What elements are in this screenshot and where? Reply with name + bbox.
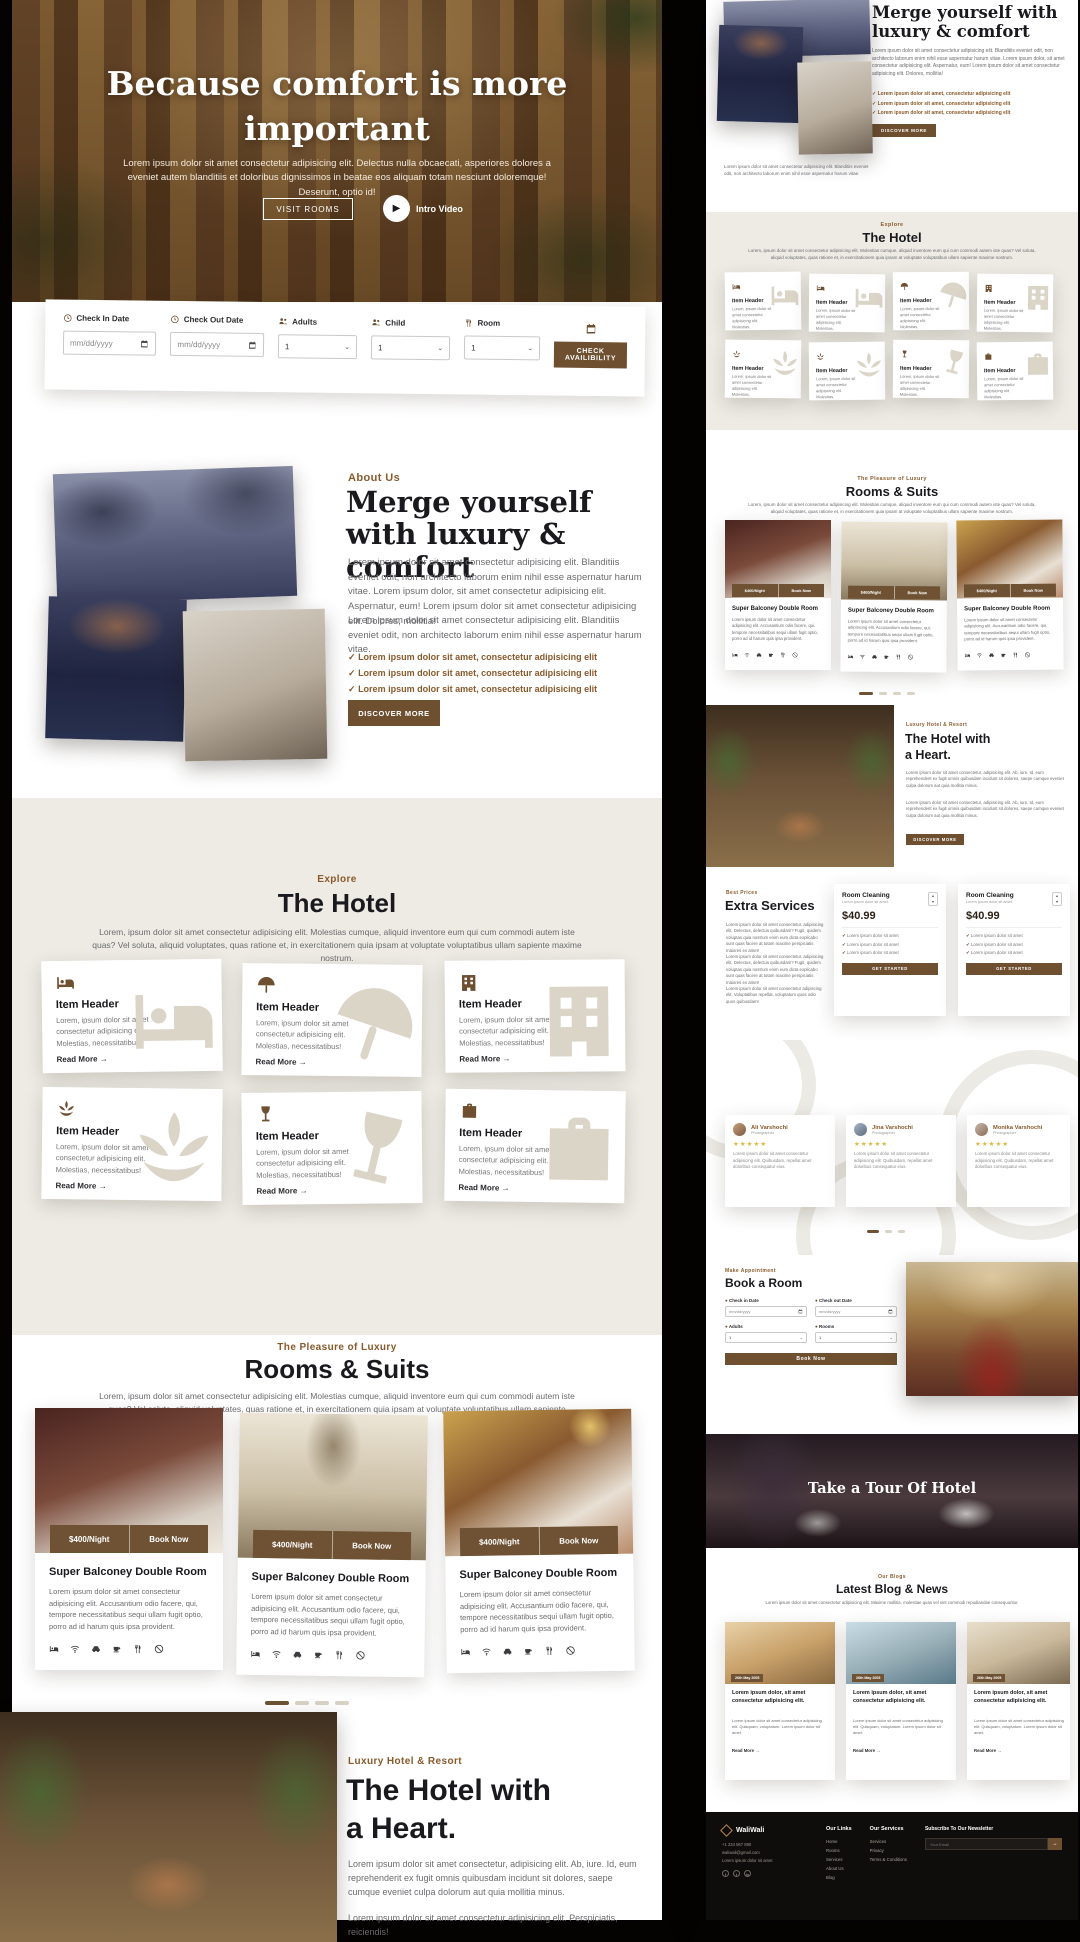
field-adults: Adults 1⌄ — [278, 316, 358, 359]
explore-card-spa[interactable]: Item Header Lorem, ipsum dolor sit amet … — [725, 340, 802, 399]
instagram-icon[interactable]: in — [744, 1870, 751, 1877]
read-more-link[interactable]: Read More → — [853, 1748, 880, 1753]
check-circle-icon: ✔ — [842, 950, 846, 955]
rooms-heading: Rooms & Suits — [12, 1354, 662, 1385]
restaurant-icon — [133, 1644, 143, 1654]
star-rating: ★★★★★ — [975, 1140, 1062, 1148]
wifi-icon — [271, 1649, 281, 1659]
get-started-button[interactable]: GET STARTED — [842, 963, 938, 975]
clock-icon — [63, 314, 72, 323]
service-feature: ✔ Lorem ipsum dolor sit amet — [842, 949, 938, 958]
services-paragraph-1: Lorem ipsum dolor sit amet consectetur, … — [726, 922, 826, 954]
room-price: $400/Night — [50, 1525, 129, 1553]
umbrella-icon — [316, 968, 423, 1077]
explore-card-building[interactable]: Item Header Lorem, ipsum dolor sit amet … — [977, 274, 1054, 333]
service-feature: ✔ Lorem ipsum dolor sit amet — [966, 949, 1062, 958]
bed-icon — [847, 654, 853, 660]
spa-leaf-icon — [56, 1099, 76, 1119]
room-price-bar: $400/Night Book Now — [50, 1525, 208, 1553]
heart-paragraph-2: Lorem ipsum dolor sit amet consectetur a… — [348, 1912, 644, 1940]
wifi-icon — [744, 652, 750, 658]
footer-email[interactable]: waliwali@gmail.com — [722, 1849, 808, 1857]
blog-card[interactable]: 26th May 2005 Lorem ipsum dolor, sit ame… — [725, 1622, 835, 1780]
book-adults-select[interactable]: 1⌄ — [725, 1332, 807, 1343]
book-field-check-in: ● Check in Date mm/dd/yyyy — [725, 1298, 807, 1317]
footer-link[interactable]: Rooms — [826, 1846, 852, 1855]
service-title: Room Cleaning — [966, 892, 1014, 899]
arrow-right-icon: → — [299, 1057, 307, 1066]
blog-title: Lorem ipsum dolor, sit amet consectetur … — [732, 1690, 828, 1705]
newsletter-send-button[interactable]: → — [1048, 1838, 1062, 1850]
discover-more-button[interactable]: DISCOVER MORE — [872, 124, 936, 137]
explore-card-spa[interactable]: Item Header Lorem, ipsum dolor sit amet … — [41, 1087, 222, 1201]
child-icon — [371, 317, 381, 327]
room-select[interactable]: 1⌄ — [464, 335, 540, 360]
footer-newsletter-block: Subscribe To Our Newsletter → — [925, 1826, 1062, 1882]
service-feature: ✔ Lorem ipsum dolor sit amet — [966, 932, 1062, 941]
quantity-stepper[interactable]: ▴▾ — [928, 892, 938, 906]
explore-card-bed[interactable]: Item Header Lorem, ipsum dolor sit amet … — [41, 959, 223, 1074]
visit-rooms-button[interactable]: VISIT ROOMS — [263, 198, 353, 220]
explore-eyebrow: Explore — [706, 222, 1078, 228]
coffee-icon — [1000, 652, 1006, 658]
briefcase-icon — [1023, 350, 1053, 380]
blog-paragraph: Lorem ipsum dolor sit amet consectetur a… — [742, 1600, 1042, 1606]
rooms-eyebrow: The Pleasure of Luxury — [706, 476, 1078, 482]
room-card[interactable]: $400/Night Book Now Super Balconey Doubl… — [956, 520, 1063, 671]
check-icon: ✓ — [872, 110, 876, 116]
book-field-adults: ● Adults 1⌄ — [725, 1324, 807, 1343]
blog-title: Lorem ipsum dolor, sit amet consectetur … — [974, 1690, 1064, 1705]
check-in-input[interactable]: mm/dd/yyyy — [63, 331, 157, 356]
hero-title: Because comfort is more important — [97, 62, 577, 151]
avatar — [733, 1123, 746, 1136]
heart-eyebrow: Luxury Hotel & Resort — [906, 722, 967, 728]
briefcase-icon — [459, 1101, 479, 1121]
heart-paragraph-1: Lorem ipsum dolor sit amet consectetur, … — [348, 1858, 644, 1900]
blog-date-badge: 26th May 2005 — [731, 1674, 763, 1682]
spa-leaf-icon — [853, 350, 885, 382]
footer-address: Lorem ipsum dolor sit amet — [722, 1857, 808, 1865]
footer-link[interactable]: About Us — [826, 1864, 852, 1873]
restaurant-icon — [895, 654, 901, 660]
wifi-icon — [481, 1647, 491, 1657]
client-name: Ali Varshochi — [751, 1125, 788, 1131]
check-circle-icon: ✔ — [966, 933, 970, 938]
room-text: Lorem ipsum dolor sit amet consectetur a… — [732, 617, 824, 642]
arrow-right-icon: → — [997, 1748, 1001, 1753]
room-amenities — [847, 654, 913, 661]
read-more-link[interactable]: Read More → — [974, 1748, 1001, 1753]
service-card[interactable]: Room Cleaning Lorem ipsum dolor sit amet… — [834, 884, 946, 1016]
bed-icon — [127, 975, 220, 1068]
book-now-button[interactable]: Book Now — [129, 1525, 209, 1553]
room-amenities — [250, 1649, 365, 1661]
arrow-right-icon: → — [876, 1748, 880, 1753]
check-availability-button[interactable]: CHECK AVAILIBILITY — [554, 342, 627, 369]
footer-links-title: Our Links — [826, 1826, 852, 1832]
about-heading: Merge yourself with luxury & comfort — [872, 4, 1072, 42]
blog-card[interactable]: 26th May 2005 Lorem ipsum dolor, sit ame… — [967, 1622, 1070, 1780]
book-field-rooms: ● Rooms 1⌄ — [815, 1324, 897, 1343]
tour-heading: Take a Tour Of Hotel — [706, 1480, 1078, 1497]
chevron-down-icon: ⌄ — [527, 344, 533, 352]
bed-icon — [460, 1647, 470, 1657]
building-icon — [459, 972, 479, 992]
no-smoking-icon — [565, 1646, 575, 1656]
room-price: $400/Night — [253, 1530, 332, 1559]
wifi-icon — [70, 1644, 80, 1654]
service-sub: Lorem ipsum dolor sit amet. — [966, 900, 1014, 904]
hero-subtitle: Lorem ipsum dolor sit amet consectetur a… — [117, 157, 557, 200]
coffee-icon — [112, 1644, 122, 1654]
service-card[interactable]: Room Cleaning Lorem ipsum dolor sit amet… — [958, 884, 1070, 1016]
rooms-heading: Rooms & Suits — [706, 484, 1078, 499]
footer-link[interactable]: Home — [826, 1837, 852, 1846]
testimonial-text: Lorem ipsum dolor sit amet consectetur a… — [733, 1151, 827, 1171]
room-price: $400/Night — [848, 586, 894, 599]
explore-card-bed[interactable]: Item Header Lorem, ipsum dolor sit amet … — [725, 272, 802, 331]
book-now-button[interactable]: Book Now — [778, 584, 825, 597]
play-button[interactable]: ▶ — [383, 195, 410, 222]
room-card[interactable]: $400/Night Book Now Super Balconey Doubl… — [725, 520, 831, 670]
bed-icon — [769, 280, 801, 312]
coffee-icon — [523, 1646, 533, 1656]
about-eyebrow: About Us — [348, 472, 400, 484]
explore-card-briefcase[interactable]: Item Header Lorem, ipsum dolor sit amet … — [444, 1089, 626, 1204]
testimonial-text: Lorem ipsum dolor sit amet consectetur a… — [854, 1151, 948, 1171]
arrow-right-icon: → — [300, 1186, 308, 1195]
client-role: Photographer — [993, 1131, 1042, 1135]
service-price: $40.99 — [966, 910, 1062, 922]
brand-name: WaliWali — [736, 1827, 764, 1834]
briefcase-icon — [984, 352, 993, 361]
check-circle-icon: ✔ — [966, 950, 970, 955]
field-child: Child 1⌄ — [371, 317, 451, 360]
umbrella-icon — [900, 282, 909, 291]
arrow-right-icon: → — [100, 1054, 108, 1063]
chevron-down-icon: ⌄ — [344, 343, 350, 351]
footer-link[interactable]: Terms & Conditions — [870, 1855, 907, 1864]
check-icon: ✓ — [348, 668, 356, 678]
room-title: Super Balconey Double Room — [459, 1567, 617, 1581]
footer-link[interactable]: Blog — [826, 1873, 852, 1882]
check-circle-icon: ✔ — [842, 933, 846, 938]
check-icon: ✓ — [348, 684, 356, 694]
service-feature: ✔ Lorem ipsum dolor sit amet — [966, 941, 1062, 950]
check-out-input[interactable]: mm/dd/yyyy — [170, 332, 264, 357]
room-amenities — [49, 1644, 164, 1654]
check-icon: ✓ — [872, 91, 876, 97]
footer-services-title: Our Services — [870, 1826, 907, 1832]
coffee-icon — [313, 1650, 323, 1660]
car-icon — [502, 1646, 512, 1656]
restaurant-icon — [544, 1646, 554, 1656]
testimonial-card[interactable]: Ali Varshochi Photographer ★★★★★ Lorem i… — [725, 1115, 835, 1207]
blog-heading: Latest Blog & News — [706, 1582, 1078, 1596]
newsletter-email-input[interactable] — [925, 1838, 1048, 1850]
footer-link[interactable]: Privacy — [870, 1846, 907, 1855]
services-eyebrow: Best Prices — [726, 890, 758, 896]
room-price-bar: $400/Night Book Now — [732, 584, 824, 597]
blog-text: Lorem ipsum dolor sit amet consectetur a… — [974, 1718, 1064, 1736]
bed-icon — [49, 1644, 59, 1654]
building-icon — [984, 284, 993, 293]
footer-services-column: Our Services Services Privacy Terms & Co… — [870, 1826, 907, 1882]
page-left: Because comfort is more important Lorem … — [12, 0, 662, 1920]
umbrella-icon — [256, 975, 276, 995]
explore-paragraph: Lorem, ipsum dolor sit amet consectetur … — [742, 248, 1042, 261]
heart-photo-lobby — [0, 1712, 337, 1942]
service-price: $40.99 — [842, 910, 938, 922]
avatar — [975, 1123, 988, 1136]
explore-paragraph: Lorem, ipsum dolor sit amet consectetur … — [92, 926, 582, 964]
page-right: Merge yourself with luxury & comfort Lor… — [706, 0, 1078, 1920]
blog-title: Lorem ipsum dolor, sit amet consectetur … — [853, 1690, 949, 1705]
spa-leaf-icon — [816, 352, 825, 361]
bed-icon — [732, 652, 738, 658]
facebook-icon[interactable]: f — [722, 1870, 729, 1877]
building-icon — [535, 975, 624, 1064]
quantity-stepper[interactable]: ▴▾ — [1052, 892, 1062, 906]
room-text: Lorem ipsum dolor sit amet consectetur a… — [251, 1591, 412, 1640]
explore-eyebrow: Explore — [12, 874, 662, 885]
service-feature: ✔ Lorem ipsum dolor sit amet — [842, 941, 938, 950]
services-heading: Extra Services — [725, 898, 815, 913]
room-price: $400/Night — [964, 584, 1010, 597]
room-title: Super Balconey Double Room — [964, 606, 1050, 613]
book-field-check-out: ● Check out Date mm/dd/yyyy — [815, 1298, 897, 1317]
field-room: Room 1⌄ — [464, 318, 540, 360]
testimonial-card[interactable]: Monika Varshochi Photographer ★★★★★ Lore… — [967, 1115, 1070, 1207]
room-card[interactable]: $400/Night Book Now Super Balconey Doubl… — [35, 1408, 223, 1670]
about-photo-bedroom — [183, 609, 328, 761]
booking-bar: Check In Date mm/dd/yyyy Check Out Date … — [44, 299, 645, 396]
room-card[interactable]: $400/Night Book Now Super Balconey Doubl… — [236, 1413, 428, 1678]
rooms-pagination[interactable] — [856, 682, 918, 700]
restaurant-icon — [334, 1650, 344, 1660]
newsletter-title: Subscribe To Our Newsletter — [925, 1826, 1062, 1832]
adults-select[interactable]: 1⌄ — [278, 334, 357, 359]
check-circle-icon: ✔ — [842, 942, 846, 947]
twitter-icon[interactable]: t — [733, 1870, 740, 1877]
bed-icon — [816, 284, 825, 293]
rooms-pagination[interactable] — [262, 1692, 352, 1710]
room-title: Super Balconey Double Room — [49, 1566, 207, 1578]
wifi-icon — [859, 654, 865, 660]
testimonial-text: Lorem ipsum dolor sit amet consectetur a… — [975, 1151, 1062, 1171]
dot-icon: ● — [725, 1324, 728, 1329]
car-icon — [91, 1644, 101, 1654]
book-now-button[interactable]: Book Now — [725, 1353, 897, 1365]
room-amenities — [964, 652, 1030, 659]
car-icon — [756, 652, 762, 658]
calendar-icon — [140, 339, 149, 348]
check-item: ✓ Lorem ipsum dolor sit amet, consectetu… — [348, 682, 597, 698]
about-photo-bedroom — [797, 61, 873, 154]
field-check-out: Check Out Date mm/dd/yyyy — [170, 315, 264, 357]
testimonial-card[interactable]: Jina Varshochi Photographer ★★★★★ Lorem … — [846, 1115, 956, 1207]
star-rating: ★★★★★ — [854, 1140, 948, 1148]
check-circle-icon: ✔ — [966, 942, 970, 947]
heart-heading: The Hotel witha Heart. — [905, 731, 990, 764]
room-price-bar: $400/Night Book Now — [964, 584, 1056, 598]
calendar-icon — [798, 1309, 803, 1314]
chevron-down-icon: ⌄ — [800, 1335, 803, 1340]
no-smoking-icon — [907, 654, 913, 660]
room-price: $400/Night — [732, 584, 778, 597]
arrow-right-icon: → — [99, 1181, 107, 1190]
explore-card-wine[interactable]: Item Header Lorem, ipsum dolor sit amet … — [893, 340, 969, 399]
brand-logo-icon — [720, 1824, 733, 1837]
book-rooms-select[interactable]: 1⌄ — [815, 1332, 897, 1343]
restaurant-icon — [1012, 652, 1018, 658]
heart-photo-lobby — [706, 705, 894, 867]
blog-card[interactable]: 26th May 2005 Lorem ipsum dolor, sit ame… — [846, 1622, 956, 1780]
client-role: Photographer — [751, 1131, 788, 1135]
about-photo-palms — [53, 466, 297, 604]
spa-leaf-icon — [769, 348, 801, 380]
car-icon — [871, 654, 877, 660]
about-paragraph-1: Lorem ipsum dolor sit amet consectetur a… — [872, 48, 1070, 78]
no-smoking-icon — [154, 1644, 164, 1654]
car-icon — [292, 1649, 302, 1659]
calendar-icon — [248, 340, 257, 349]
book-check-out-input[interactable]: mm/dd/yyyy — [815, 1306, 897, 1317]
check-icon: ✓ — [348, 652, 356, 662]
explore-card-bed[interactable]: Item Header Lorem, ipsum dolor sit amet … — [809, 274, 886, 333]
dot-icon: ● — [815, 1298, 818, 1303]
testimonials-heading: What Our Clients Say — [1059, 1070, 1080, 1084]
no-smoking-icon — [355, 1650, 365, 1660]
calendar-icon — [585, 323, 597, 335]
explore-card-briefcase[interactable]: Item Header Lorem, ipsum dolor sit amet … — [977, 342, 1054, 401]
wine-icon — [900, 350, 909, 359]
intro-video-label: Intro Video — [416, 204, 463, 214]
chevron-down-icon: ⌄ — [890, 1335, 893, 1340]
book-now-button[interactable]: Book Now — [538, 1526, 618, 1555]
about-checklist: ✓ Lorem ipsum dolor sit amet, consectetu… — [348, 650, 597, 697]
room-card[interactable]: $400/Night Book Now Super Balconey Doubl… — [840, 522, 947, 673]
heart-paragraph-1: Lorem ipsum dolor sit amet consectetur, … — [906, 770, 1066, 789]
footer-phone: +1 234 567 890 — [722, 1841, 808, 1849]
blog-date-badge: 26th May 2005 — [973, 1674, 1005, 1682]
tour-banner[interactable]: Take a Tour Of Hotel — [706, 1434, 1078, 1548]
room-text: Lorem ipsum dolor sit amet consectetur a… — [964, 617, 1056, 643]
footer-link[interactable]: Services — [870, 1837, 907, 1846]
field-check-in: Check In Date mm/dd/yyyy — [63, 314, 157, 356]
rooms-paragraph: Lorem, ipsum dolor sit amet consectetur … — [742, 502, 1042, 515]
heart-paragraph-2: Lorem ipsum dolor sit amet consectetur, … — [906, 800, 1066, 819]
blog-eyebrow: Our Blogs — [706, 1574, 1078, 1580]
room-title: Super Balconey Double Room — [848, 608, 934, 615]
check-item: ✓ Lorem ipsum dolor sit amet, consectetu… — [348, 666, 597, 682]
room-amenities — [732, 652, 798, 658]
heart-eyebrow: Luxury Hotel & Resort — [348, 1756, 462, 1767]
service-title: Room Cleaning — [842, 892, 890, 899]
no-smoking-icon — [792, 652, 798, 658]
service-sub: Lorem ipsum dolor sit amet. — [842, 900, 890, 904]
explore-heading: The Hotel — [12, 888, 662, 919]
explore-card-spa[interactable]: Item Header Lorem, ipsum dolor sit amet … — [809, 342, 886, 401]
testimonials-pagination[interactable] — [864, 1220, 908, 1238]
check-item: ✓ Lorem ipsum dolor sit amet, consectetu… — [348, 650, 597, 666]
room-title: Super Balconey Double Room — [732, 606, 818, 612]
dot-icon: ● — [815, 1324, 818, 1329]
room-price-bar: $400/Night Book Now — [460, 1526, 618, 1556]
coffee-icon — [768, 652, 774, 658]
discover-more-button[interactable]: DISCOVER MORE — [906, 834, 964, 845]
room-price-bar: $400/Night Book Now — [253, 1530, 411, 1560]
star-rating: ★★★★★ — [733, 1140, 827, 1148]
room-card[interactable]: $400/Night Book Now Super Balconey Doubl… — [443, 1409, 635, 1674]
bed-icon — [964, 652, 970, 658]
service-feature: ✔ Lorem ipsum dolor sit amet — [842, 932, 938, 941]
child-select[interactable]: 1⌄ — [371, 335, 450, 360]
calendar-icon — [888, 1309, 893, 1314]
book-form: ● Check in Date mm/dd/yyyy ● Check out D… — [725, 1298, 897, 1365]
client-name: Jina Varshochi — [872, 1125, 913, 1131]
testimonials-eyebrow: Testimonial — [1059, 1062, 1080, 1068]
briefcase-icon — [534, 1106, 623, 1195]
arrow-right-icon: → — [501, 1183, 509, 1192]
explore-heading: The Hotel — [706, 230, 1078, 245]
bed-icon — [55, 973, 75, 993]
blog-text: Lorem ipsum dolor sit amet consectetur a… — [732, 1718, 828, 1736]
book-eyebrow: Make Appointment — [725, 1268, 776, 1274]
footer-links-column: Our Links Home Rooms Services About Us B… — [826, 1826, 852, 1882]
services-paragraph-3: Lorem ipsum dolor sit amet consectetur a… — [726, 986, 826, 1005]
book-now-button[interactable]: Book Now — [331, 1531, 411, 1560]
book-heading: Book a Room — [725, 1276, 802, 1290]
footer-brand-block: WaliWali +1 234 567 890 waliwali@gmail.c… — [722, 1826, 808, 1882]
explore-card-umbrella[interactable]: Item Header Lorem, ipsum dolor sit amet … — [241, 963, 422, 1077]
clock-icon — [171, 315, 180, 324]
book-now-button[interactable]: Book Now — [1009, 584, 1056, 597]
bed-icon — [853, 282, 885, 314]
discover-more-button[interactable]: DISCOVER MORE — [348, 700, 440, 726]
book-check-in-input[interactable]: mm/dd/yyyy — [725, 1306, 807, 1317]
wifi-icon — [976, 652, 982, 658]
read-more-link[interactable]: Read More → — [732, 1748, 759, 1753]
book-photo-staircase — [906, 1262, 1078, 1396]
explore-card-wine[interactable]: Item Header Lorem, ipsum dolor sit amet … — [241, 1091, 422, 1205]
services-paragraph-2: Lorem ipsum dolor sit amet consectetur, … — [726, 954, 826, 986]
blog-date-badge: 26th May 2005 — [852, 1674, 884, 1682]
get-started-button[interactable]: GET STARTED — [966, 963, 1062, 975]
rooms-eyebrow: The Pleasure of Luxury — [12, 1342, 662, 1353]
room-amenities — [460, 1646, 575, 1658]
room-text: Lorem ipsum dolor sit amet consectetur a… — [460, 1587, 621, 1636]
explore-card-umbrella[interactable]: Item Header Lorem, ipsum dolor sit amet … — [893, 272, 969, 331]
room-title: Super Balconey Double Room — [251, 1571, 409, 1585]
client-role: Photographer — [872, 1131, 913, 1135]
bed-icon — [250, 1649, 260, 1659]
book-now-button[interactable]: Book Now — [893, 586, 940, 599]
explore-card-building[interactable]: Item Header Lorem, ipsum dolor sit amet … — [445, 959, 626, 1073]
bed-icon — [732, 282, 741, 291]
footer: WaliWali +1 234 567 890 waliwali@gmail.c… — [706, 1812, 1078, 1920]
client-name: Monika Varshochi — [993, 1125, 1042, 1131]
room-price-bar: $400/Night Book Now — [848, 586, 940, 600]
restaurant-icon — [780, 652, 786, 658]
heart-heading: The Hotel witha Heart. — [346, 1772, 551, 1847]
room-price: $400/Night — [460, 1527, 539, 1556]
footer-link[interactable]: Services — [826, 1855, 852, 1864]
blog-text: Lorem ipsum dolor sit amet consectetur a… — [853, 1718, 949, 1736]
wine-icon — [256, 1105, 276, 1125]
adults-icon — [278, 316, 288, 326]
